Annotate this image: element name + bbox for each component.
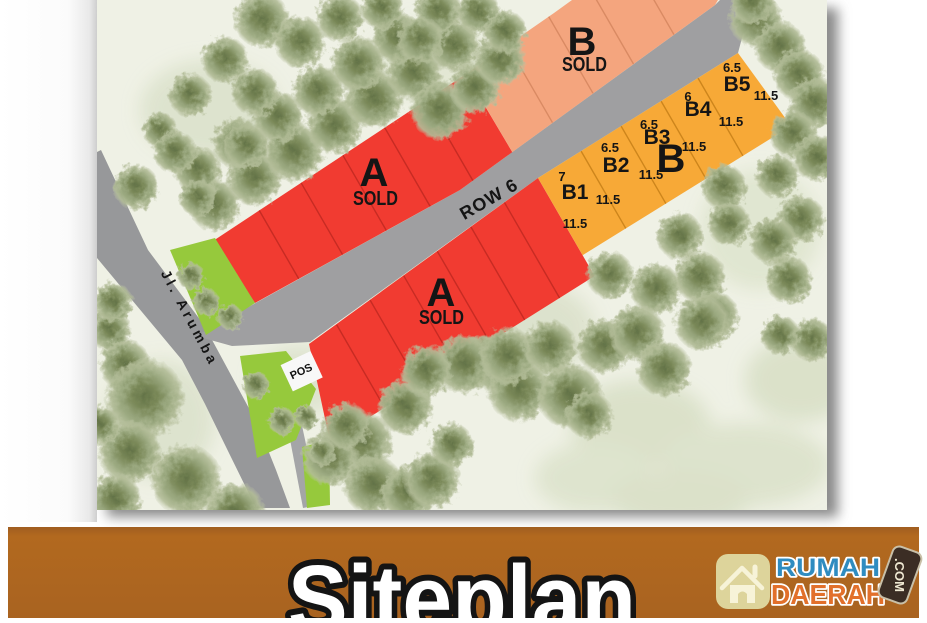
svg-text:11.5: 11.5 — [754, 88, 779, 103]
svg-text:SOLD: SOLD — [419, 307, 464, 329]
svg-text:DAERAH: DAERAH — [771, 579, 885, 610]
svg-text:6: 6 — [684, 89, 691, 104]
svg-text:.COM: .COM — [892, 558, 907, 592]
svg-text:B2: B2 — [603, 154, 630, 177]
svg-text:Siteplan: Siteplan — [288, 545, 636, 618]
svg-text:11.5: 11.5 — [563, 216, 588, 231]
svg-text:6.5: 6.5 — [640, 117, 658, 132]
svg-text:11.5: 11.5 — [639, 167, 664, 182]
svg-text:B5: B5 — [724, 73, 751, 96]
svg-text:7: 7 — [558, 169, 565, 184]
svg-text:11.5: 11.5 — [682, 139, 707, 154]
svg-text:B1: B1 — [562, 181, 589, 204]
svg-text:11.5: 11.5 — [596, 192, 621, 207]
svg-text:RUMAH: RUMAH — [776, 554, 880, 582]
svg-text:11.5: 11.5 — [719, 114, 744, 129]
svg-text:SOLD: SOLD — [353, 188, 398, 210]
svg-text:6.5: 6.5 — [723, 60, 741, 75]
svg-text:6.5: 6.5 — [601, 140, 619, 155]
svg-text:SOLD: SOLD — [562, 54, 607, 76]
